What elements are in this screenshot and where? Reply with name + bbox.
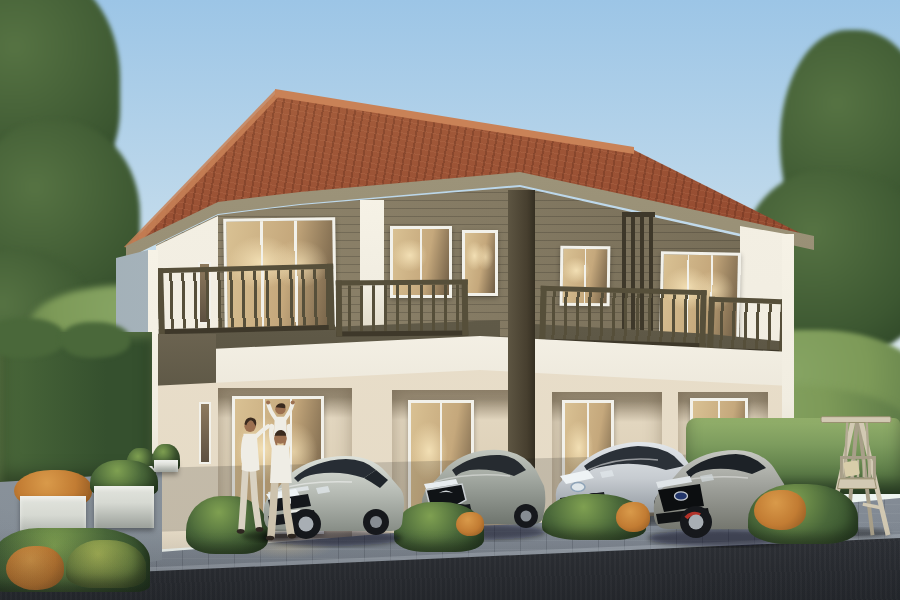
low-hedge-3 bbox=[542, 494, 646, 540]
planter-box bbox=[94, 486, 154, 528]
mini-planter bbox=[154, 460, 178, 472]
person-man-with-child bbox=[266, 400, 296, 540]
yellow-green-shrub bbox=[66, 540, 146, 588]
family-group bbox=[234, 388, 306, 544]
orange-shrub bbox=[754, 490, 806, 530]
person-woman bbox=[237, 418, 268, 534]
scene-root bbox=[0, 0, 900, 600]
orange-shrub bbox=[6, 546, 64, 590]
orange-shrub bbox=[456, 512, 484, 536]
low-hedge-2 bbox=[394, 502, 484, 552]
low-hedge-4 bbox=[748, 484, 858, 544]
